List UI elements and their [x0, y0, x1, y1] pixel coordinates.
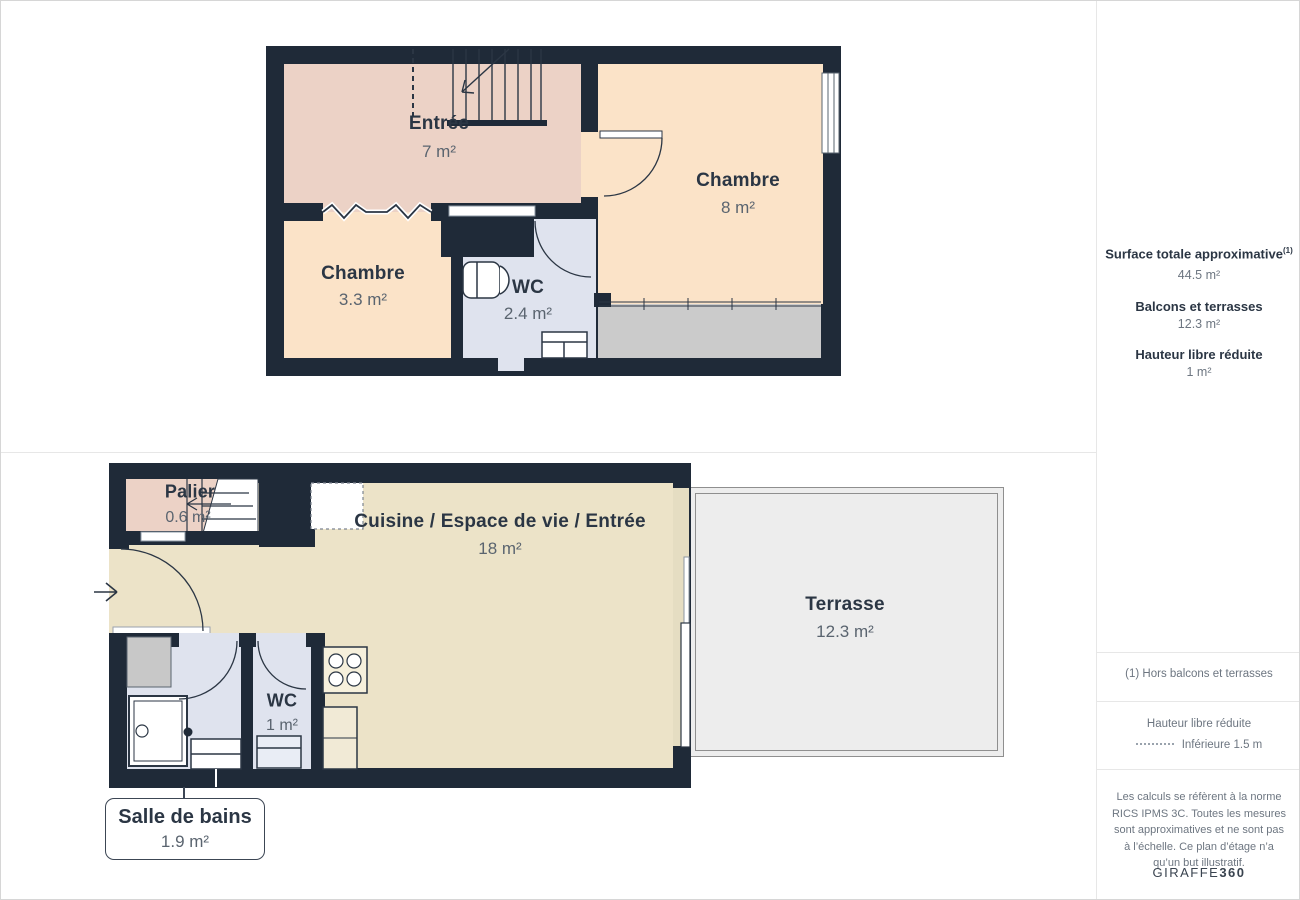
surface-total-title-text: Surface totale approximative	[1105, 246, 1283, 261]
sink-icon	[542, 332, 587, 358]
door-opening-floor	[581, 132, 598, 197]
disclaimer-text: Les calculs se réfèrent à la norme RICS …	[1111, 789, 1287, 872]
footnote-text: (1) Hors balcons et terrasses	[1097, 668, 1300, 680]
threshold	[113, 627, 210, 634]
hauteur-title: Hauteur libre réduite	[1097, 347, 1300, 362]
reduced-height-area	[598, 304, 821, 358]
legend-label: Inférieure 1.5 m	[1182, 739, 1263, 751]
balcons-title: Balcons et terrasses	[1097, 299, 1300, 314]
room-label-entree: Entrée	[409, 113, 469, 135]
counter-icon	[323, 707, 357, 769]
door-leaf	[600, 131, 662, 138]
dotted-line-icon	[1136, 743, 1174, 747]
room-area-wc-upper: 2.4 m²	[504, 304, 552, 324]
zigzag-opening-icon	[323, 203, 431, 221]
room-label-chambre-right: Chambre	[696, 170, 780, 192]
lintel	[141, 532, 185, 541]
wc-floor-notch	[498, 358, 524, 371]
room-label-cuisine: Cuisine / Espace de vie / Entrée	[354, 511, 646, 533]
room-area-palier: 0.6 m²	[165, 509, 210, 527]
room-label-salle-de-bains: Salle de bains	[106, 806, 264, 829]
sink-icon	[191, 739, 241, 769]
toilet-icon	[463, 262, 509, 298]
floor-separator-line	[1, 452, 1096, 453]
room-area-wc-lower: 1 m²	[266, 717, 298, 735]
washer-icon	[127, 637, 171, 687]
surface-total-value: 44.5 m²	[1097, 268, 1300, 282]
wall-seg	[241, 633, 253, 769]
room-area-cuisine: 18 m²	[478, 539, 521, 559]
room-area-chambre-left: 3.3 m²	[339, 290, 387, 310]
giraffe360-logo: GIRAFFE360	[1097, 865, 1300, 880]
balcons-value: 12.3 m²	[1097, 317, 1300, 331]
legend-row: Inférieure 1.5 m	[1097, 739, 1300, 751]
legend-title: Hauteur libre réduite	[1097, 718, 1300, 730]
room-label-wc-lower: WC	[267, 691, 297, 712]
stove-icon	[323, 647, 367, 693]
sidebar-divider	[1097, 769, 1300, 770]
hauteur-value: 1 m²	[1097, 365, 1300, 379]
sidebar-divider	[1097, 652, 1300, 653]
room-area-entree: 7 m²	[422, 142, 456, 162]
plumbing-dot	[184, 728, 193, 737]
sidebar-divider	[1097, 701, 1300, 702]
lintel	[449, 206, 535, 216]
room-label-terrasse: Terrasse	[805, 594, 884, 616]
room-label-palier: Palier	[165, 482, 215, 503]
brand-regular: GIRAFFE	[1152, 865, 1219, 880]
shower-icon	[129, 696, 187, 766]
brand-bold: 360	[1219, 865, 1245, 880]
room-area-chambre-right: 8 m²	[721, 198, 755, 218]
entry-arrow-icon	[91, 578, 123, 606]
room-area-terrasse: 12.3 m²	[816, 622, 874, 642]
wc-sink-icon	[257, 736, 301, 768]
wall-chunk	[259, 463, 315, 547]
window-icon	[822, 73, 839, 153]
room-area-salle-de-bains: 1.9 m²	[106, 832, 264, 852]
surface-total-footnote-ref: (1)	[1283, 246, 1293, 255]
sidebar: Surface totale approximative(1) 44.5 m² …	[1096, 1, 1300, 900]
floorplan-page: Entrée 7 m² Chambre 8 m² Chambre 3.3 m² …	[0, 0, 1300, 900]
wall-stub	[594, 293, 611, 307]
surface-total-title: Surface totale approximative(1)	[1097, 246, 1300, 261]
room-label-wc-upper: WC	[512, 277, 544, 299]
room-label-chambre-left: Chambre	[321, 263, 405, 285]
salle-de-bains-callout: Salle de bains 1.9 m²	[105, 798, 265, 860]
